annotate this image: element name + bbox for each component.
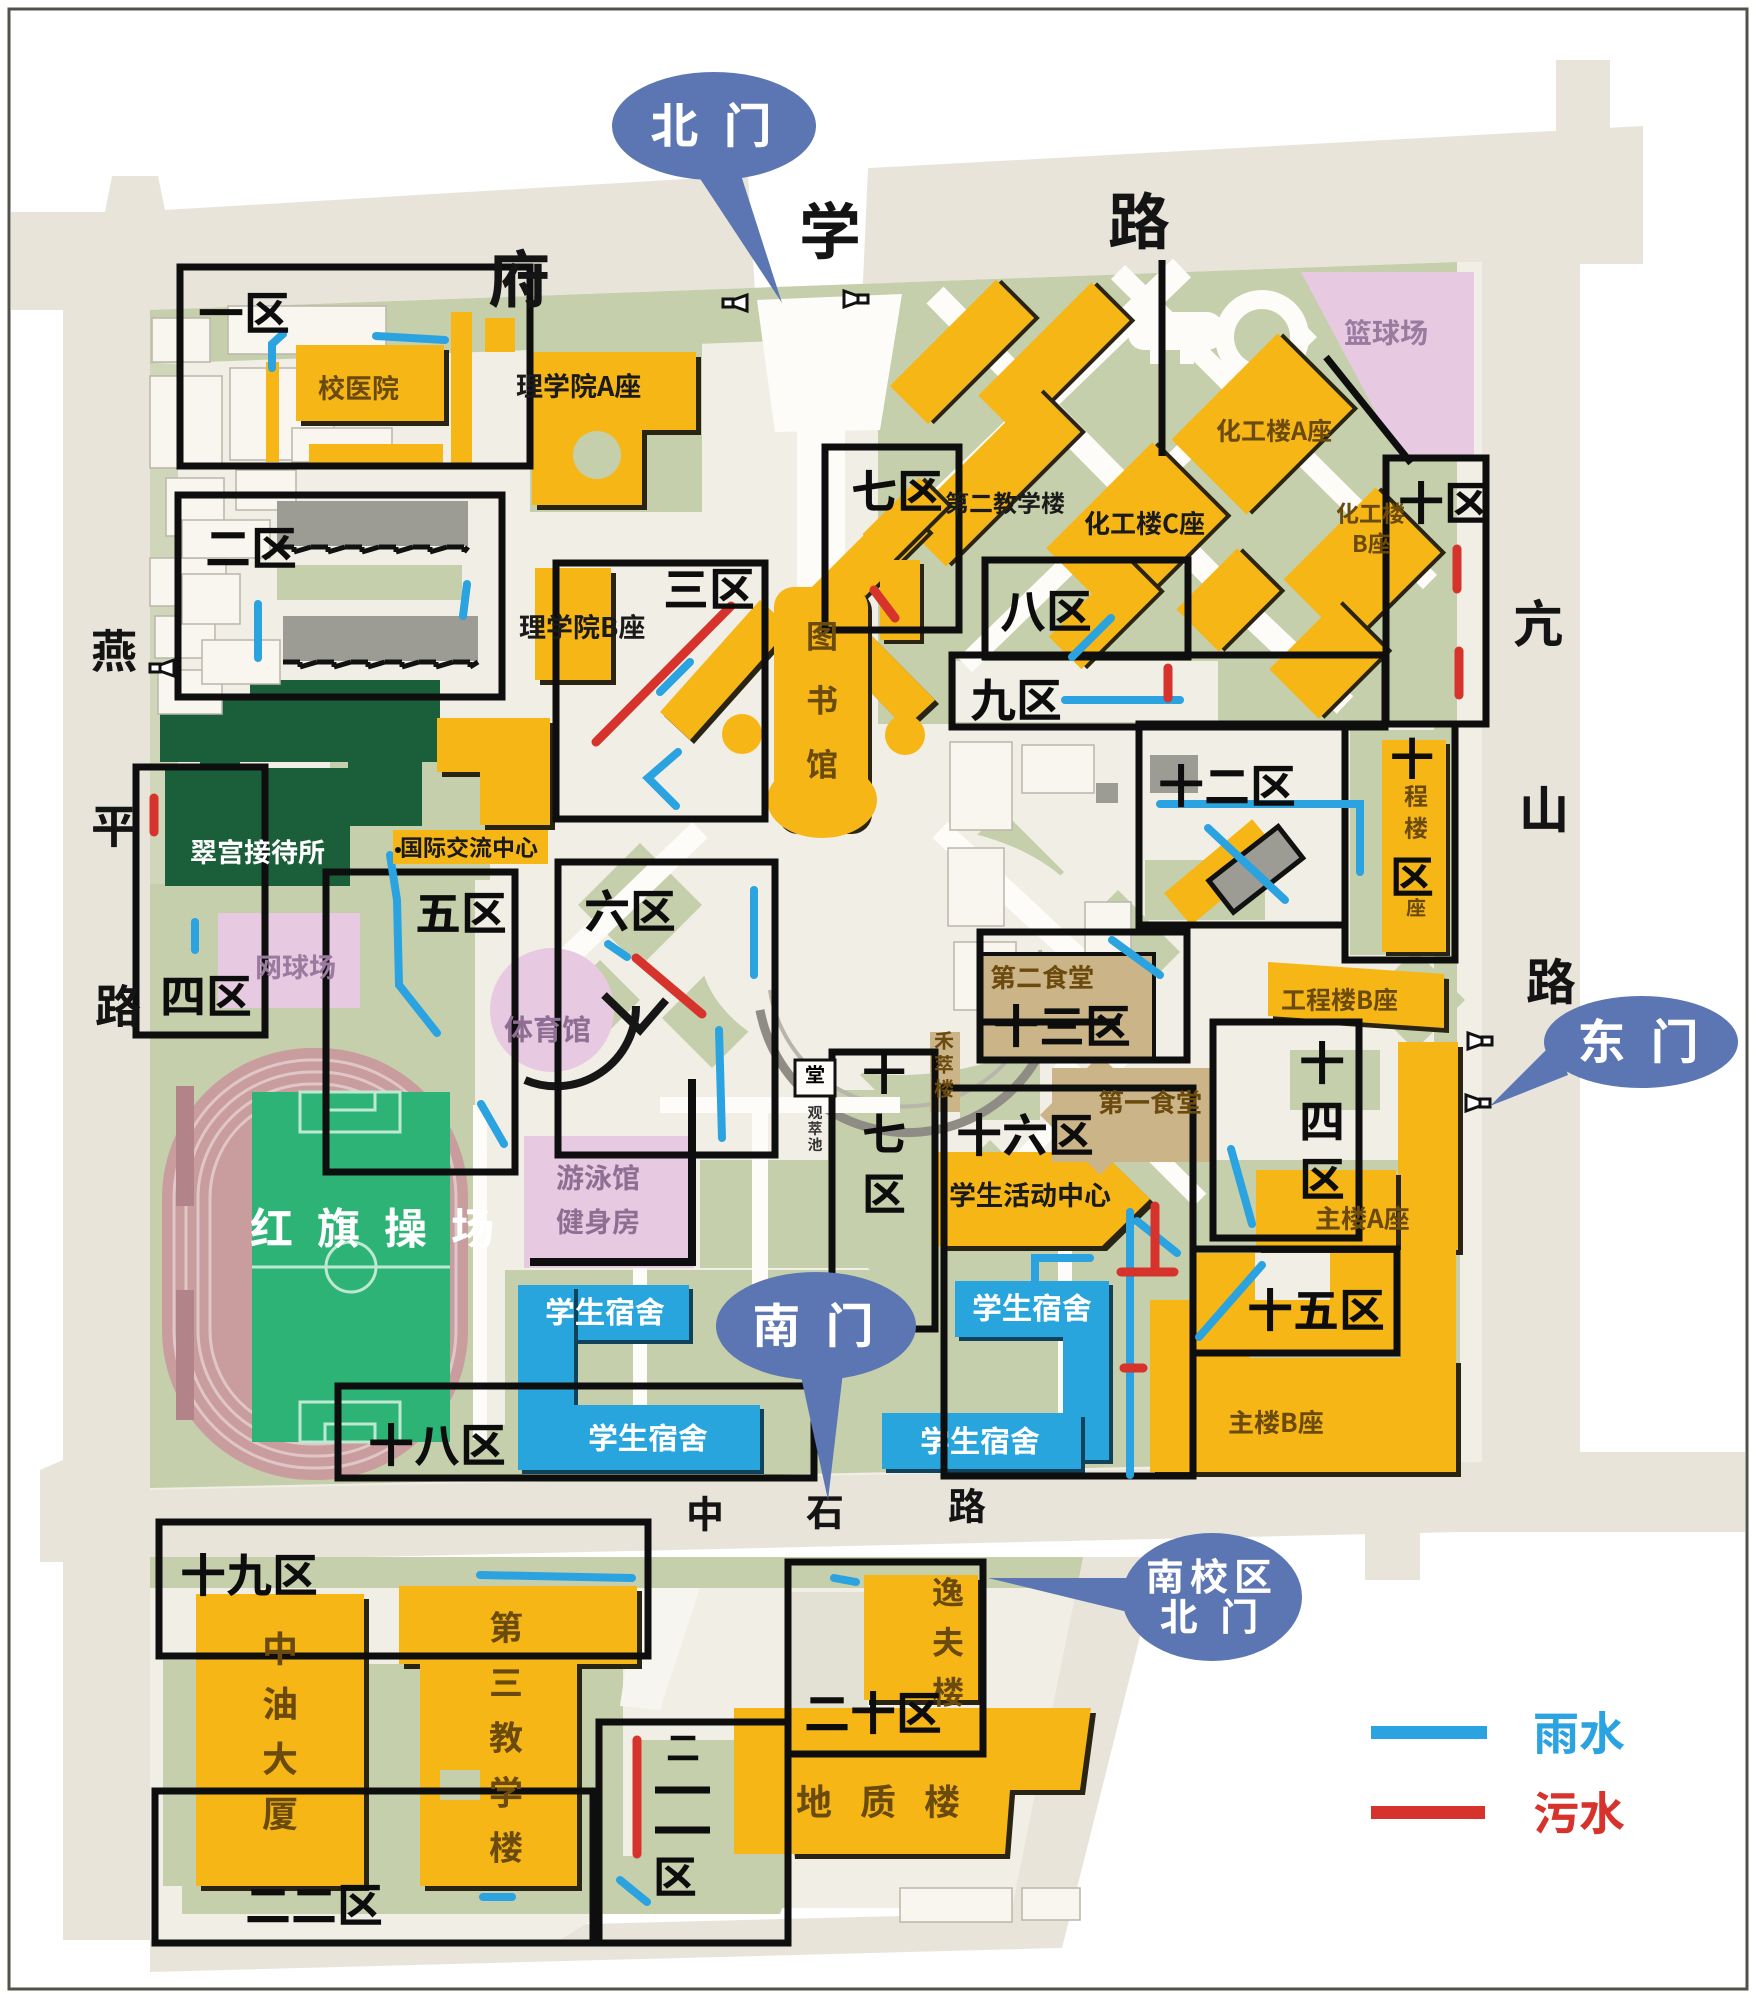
svg-text:逸: 逸 (932, 1568, 964, 1614)
svg-text:国际交流中心: 国际交流中心 (400, 829, 538, 863)
svg-text:红旗操场: 红旗操场 (250, 1195, 518, 1257)
svg-text:学生宿舍: 学生宿舍 (545, 1288, 665, 1332)
svg-text:学生宿舍: 学生宿舍 (920, 1417, 1040, 1461)
svg-text:十: 十 (1299, 1028, 1345, 1094)
svg-text:北 门: 北 门 (650, 87, 777, 157)
svg-text:十九区: 十九区 (180, 1540, 318, 1606)
svg-text:理学院A座: 理学院A座 (516, 365, 641, 404)
svg-text:校医院: 校医院 (318, 367, 399, 406)
svg-text:亢: 亢 (1513, 585, 1563, 657)
svg-text:健身房: 健身房 (556, 1201, 640, 1241)
svg-text:四区: 四区 (160, 961, 252, 1027)
svg-text:区: 区 (862, 1159, 906, 1223)
svg-text:理学院B座: 理学院B座 (519, 606, 645, 645)
svg-text:大: 大 (262, 1731, 298, 1783)
svg-text:楼: 楼 (489, 1821, 523, 1870)
svg-text:十区: 十区 (1398, 468, 1490, 534)
svg-text:中: 中 (686, 1484, 724, 1539)
svg-text:北 门: 北 门 (1160, 1586, 1265, 1641)
svg-text:石: 石 (806, 1482, 844, 1537)
svg-text:楼: 楼 (934, 1073, 954, 1102)
svg-text:路: 路 (95, 971, 141, 1037)
svg-text:路: 路 (948, 1476, 986, 1531)
svg-text:十六区: 十六区 (956, 1100, 1094, 1166)
svg-text:楼: 楼 (1404, 809, 1428, 844)
svg-text:六区: 六区 (584, 876, 676, 942)
svg-text:十二区: 十二区 (1158, 751, 1296, 817)
svg-text:学生活动中心: 学生活动中心 (949, 1174, 1111, 1213)
svg-text:B座: B座 (1352, 525, 1391, 559)
svg-text:四: 四 (1299, 1086, 1345, 1152)
svg-text:中: 中 (262, 1621, 298, 1673)
svg-text:十: 十 (862, 1039, 906, 1103)
svg-text:游泳馆: 游泳馆 (556, 1157, 640, 1197)
svg-text:七: 七 (862, 1099, 906, 1163)
svg-text:十: 十 (1390, 724, 1434, 788)
svg-text:教: 教 (489, 1711, 523, 1760)
svg-text:池: 池 (807, 1134, 822, 1155)
svg-text:二十区: 二十区 (804, 1678, 942, 1744)
svg-text:主楼B座: 主楼B座 (1228, 1403, 1324, 1440)
svg-text:化工楼A座: 化工楼A座 (1216, 412, 1332, 448)
svg-text:南 门: 南 门 (752, 1287, 879, 1357)
svg-text:平: 平 (91, 791, 137, 857)
svg-text:区: 区 (1390, 842, 1434, 906)
svg-text:山: 山 (1519, 771, 1569, 843)
svg-text:书: 书 (806, 676, 838, 722)
svg-text:地质楼: 地质楼 (796, 1774, 988, 1826)
svg-text:区: 区 (653, 1842, 697, 1906)
svg-text:夫: 夫 (932, 1618, 964, 1664)
svg-text:雨水: 雨水 (1533, 1698, 1625, 1764)
svg-text:区: 区 (1299, 1144, 1345, 1210)
svg-text:厦: 厦 (262, 1786, 298, 1838)
svg-text:翠宫接待所: 翠宫接待所 (190, 831, 325, 870)
svg-text:化工楼: 化工楼 (1336, 495, 1405, 529)
svg-text:路: 路 (1526, 943, 1576, 1015)
svg-text:七区: 七区 (851, 456, 943, 522)
svg-text:堂: 堂 (805, 1059, 825, 1088)
svg-text:油: 油 (262, 1676, 298, 1728)
svg-text:十八区: 十八区 (368, 1410, 506, 1476)
svg-text:污水: 污水 (1533, 1778, 1625, 1844)
svg-text:东 门: 东 门 (1577, 1003, 1704, 1073)
svg-text:第一食堂: 第一食堂 (1098, 1083, 1202, 1120)
svg-text:工程楼B座: 工程楼B座 (1281, 981, 1398, 1017)
svg-text:二二区: 二二区 (245, 1870, 383, 1936)
svg-text:学: 学 (489, 1766, 523, 1815)
svg-text:二区: 二区 (205, 513, 297, 579)
svg-text:燕: 燕 (91, 616, 137, 682)
svg-text:九区: 九区 (970, 665, 1062, 731)
svg-text:五区: 五区 (415, 878, 507, 944)
svg-text:化工楼C座: 化工楼C座 (1084, 504, 1205, 541)
svg-text:第二食堂: 第二食堂 (990, 958, 1094, 995)
svg-text:路: 路 (1108, 172, 1170, 262)
svg-text:一区: 一区 (198, 278, 290, 344)
svg-text:学: 学 (799, 182, 861, 272)
svg-text:二: 二 (666, 1721, 700, 1770)
svg-text:第二教学楼: 第二教学楼 (945, 484, 1065, 519)
svg-text:图: 图 (806, 612, 838, 658)
svg-text:十五区: 十五区 (1247, 1275, 1385, 1341)
svg-text:网球场: 网球场 (255, 946, 336, 985)
svg-text:体育馆: 体育馆 (504, 1007, 591, 1049)
svg-text:学生宿舍: 学生宿舍 (588, 1414, 708, 1458)
svg-text:八区: 八区 (1000, 576, 1092, 642)
svg-text:第: 第 (489, 1601, 523, 1650)
svg-text:馆: 馆 (806, 740, 838, 786)
svg-text:府: 府 (488, 230, 550, 320)
svg-text:三: 三 (489, 1656, 523, 1705)
svg-text:三区: 三区 (663, 554, 755, 620)
svg-text:篮球场: 篮球场 (1344, 312, 1428, 352)
